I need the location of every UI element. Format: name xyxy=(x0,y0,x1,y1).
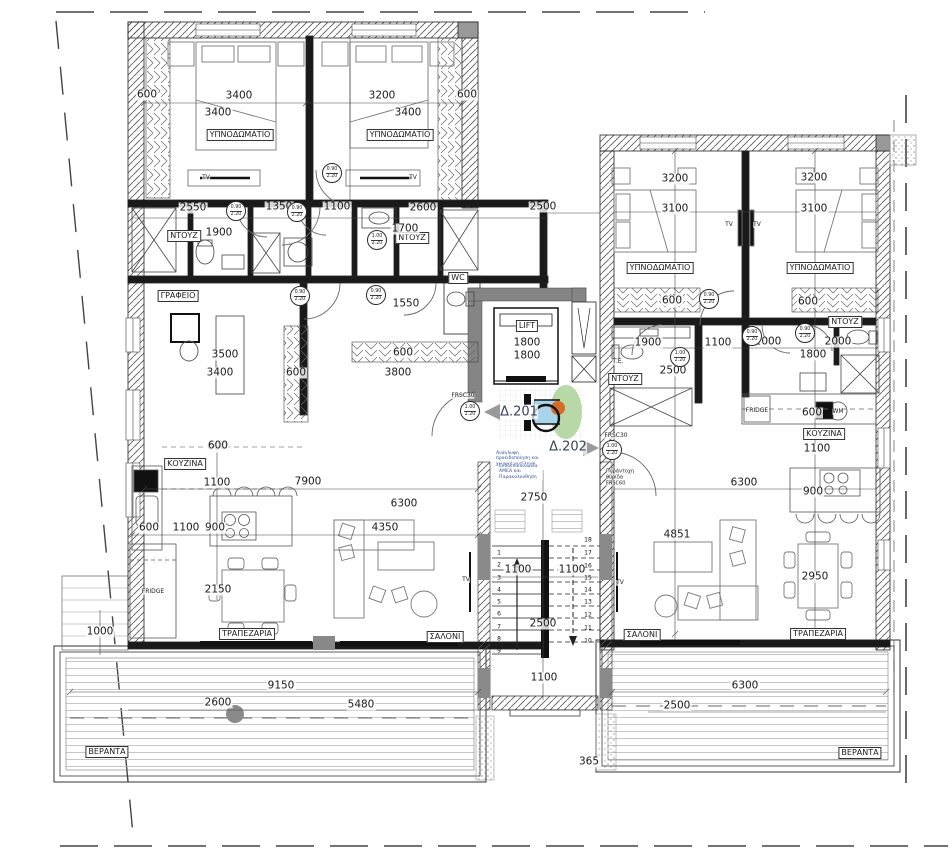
core-lift xyxy=(468,288,596,402)
office-furniture xyxy=(171,314,244,394)
kitchen-left xyxy=(130,466,297,638)
core-landing xyxy=(484,385,599,456)
core-stairs xyxy=(476,462,616,780)
kitchen-right xyxy=(742,394,880,523)
floor-plan-canvas: ΥΠΝΟΔΩΜΑΤΙΟΥΠΝΟΔΩΜΑΤΙΟΥΠΝΟΔΩΜΑΤΙΟΥΠΝΟΔΩΜ… xyxy=(0,0,952,856)
floor-plan-drawing xyxy=(0,0,952,856)
living-right xyxy=(617,520,852,620)
veranda-left xyxy=(54,576,486,782)
veranda-right xyxy=(596,640,900,772)
living-left xyxy=(209,520,470,634)
